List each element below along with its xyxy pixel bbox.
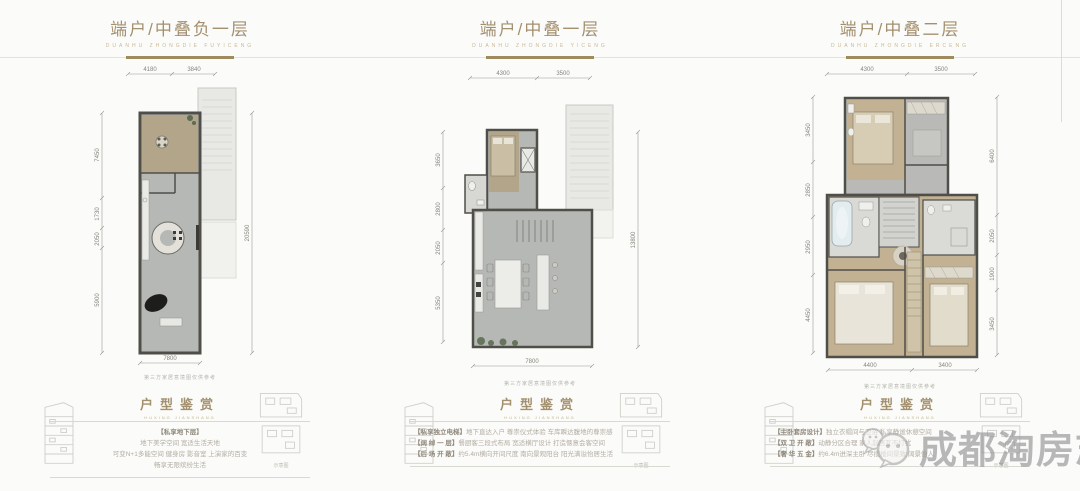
svg-text:2850: 2850 — [806, 183, 812, 197]
svg-text:5900: 5900 — [95, 293, 101, 307]
appreciation-header: 户型鉴赏 HUXING JIANSHANG — [775, 394, 1025, 420]
floor-plan-basement: 4180 3840 7450 1730 2050 5900 20590 7800 — [40, 60, 270, 370]
svg-text:4400: 4400 — [863, 363, 877, 369]
svg-text:4180: 4180 — [143, 67, 157, 73]
svg-text:3400: 3400 — [938, 363, 952, 369]
appreciation-header: 户型鉴赏 HUXING JIANSHANG — [55, 394, 305, 420]
dimension-right: 20590 — [245, 111, 254, 355]
panel-subtitle: DUANHU ZHONGDIE ERCENG — [720, 43, 1080, 49]
svg-text:7450: 7450 — [95, 148, 101, 162]
dimension-left: 3450 2850 2950 4450 — [806, 95, 815, 355]
bathroom — [465, 175, 487, 213]
panel-subtitle: DUANHU ZHONGDIE YICENG — [360, 43, 720, 49]
stairwell-annex — [198, 88, 236, 278]
dimension-top: 4300 3500 — [825, 67, 977, 76]
wechat-bubbles-icon — [860, 423, 914, 471]
svg-text:2050: 2050 — [436, 241, 442, 255]
bedroom-block — [487, 130, 537, 210]
living-dining-block — [473, 210, 592, 347]
appreciation-header: 户型鉴赏 HUXING JIANSHANG — [415, 394, 665, 420]
gold-accent-bar — [486, 56, 594, 59]
floor-plan-first: 4300 3500 3650 2800 2050 5350 13800 7800 — [395, 60, 675, 376]
dimension-right: 6400 2050 1900 3450 — [990, 95, 999, 357]
svg-text:3840: 3840 — [187, 67, 201, 73]
svg-text:1730: 1730 — [95, 207, 101, 221]
desc-line: 畅享无限缤纷生活 — [54, 460, 306, 471]
dimension-bottom: 7800 — [471, 359, 594, 368]
svg-text:4300: 4300 — [496, 71, 510, 77]
upper-section — [845, 98, 948, 195]
svg-text:7800: 7800 — [163, 356, 177, 362]
svg-text:2800: 2800 — [436, 202, 442, 216]
plan-caption: 第三方家居意境图仅供参考 — [0, 374, 360, 381]
appreciation-title: 户型鉴赏 — [775, 394, 1025, 413]
lower-section — [827, 195, 977, 357]
dimension-bottom: 7800 — [138, 356, 202, 365]
svg-text:4450: 4450 — [806, 308, 812, 322]
panel-title: 端户/中叠负一层 — [0, 15, 360, 40]
svg-text:3500: 3500 — [934, 67, 948, 73]
appreciation-subtitle: HUXING JIANSHANG — [415, 415, 665, 420]
svg-text:13800: 13800 — [631, 231, 637, 248]
svg-text:3450: 3450 — [806, 123, 812, 137]
desc-line: 地下美学空间 宽适生活天地 — [54, 438, 306, 449]
svg-text:3450: 3450 — [990, 317, 996, 331]
svg-text:20590: 20590 — [245, 224, 251, 241]
dimension-bottom: 4400 3400 — [826, 363, 979, 372]
dimension-left: 7450 1730 2050 5900 — [95, 111, 104, 355]
desc-line: 可变N+1多能空间 健身房 影音室 上演家的百变 — [54, 449, 306, 460]
floor-plan-second: 4300 3500 3450 2850 2950 4450 6400 2050 … — [755, 60, 1055, 380]
watermark-text: 成都淘房志 — [919, 419, 1080, 474]
svg-text:1900: 1900 — [990, 267, 996, 281]
appreciation-text: 【私享地下层】 地下美学空间 宽适生活天地 可变N+1多能空间 健身房 影音室 … — [50, 421, 310, 478]
dimension-top: 4180 3840 — [126, 67, 217, 76]
appreciation-title: 户型鉴赏 — [415, 394, 665, 413]
gold-accent-bar — [846, 56, 954, 59]
svg-text:4300: 4300 — [860, 67, 874, 73]
plan-caption: 第三方家居意境图仅供参考 — [720, 383, 1080, 390]
panel-title: 端户/中叠一层 — [360, 15, 720, 40]
desc-line: 【私享地下层】 — [54, 427, 306, 438]
dimension-left: 3650 2800 2050 5350 — [436, 130, 445, 344]
panel-subtitle: DUANHU ZHONGDIE FUYICENG — [0, 43, 360, 49]
dimension-right: 13800 — [631, 130, 640, 349]
svg-text:2050: 2050 — [95, 232, 101, 246]
desc-line: 【后 场 开 敞】约5.4m横向开间尺度 南向景观阳台 阳光满溢怡居生活 — [414, 449, 666, 460]
desc-line: 【阔 绰 一 层】餐厨客三段式布局 宽适横厅设计 打造惬意会客空间 — [414, 438, 666, 449]
svg-text:3500: 3500 — [556, 71, 570, 77]
panel-basement: 端户/中叠负一层 DUANHU ZHONGDIE FUYICENG — [0, 0, 360, 491]
svg-text:6400: 6400 — [990, 149, 996, 163]
plan-caption: 第三方家居意境图仅供参考 — [360, 380, 720, 387]
panel-second-floor: 端户/中叠二层 DUANHU ZHONGDIE ERCENG — [720, 0, 1080, 491]
svg-text:7800: 7800 — [525, 359, 539, 365]
appreciation-subtitle: HUXING JIANSHANG — [55, 415, 305, 420]
appreciation-title: 户型鉴赏 — [55, 394, 305, 413]
panel-title: 端户/中叠二层 — [720, 15, 1080, 40]
panel-first-floor: 端户/中叠一层 DUANHU ZHONGDIE YICENG — [360, 0, 720, 491]
watermark: 成都淘房志 — [860, 419, 1080, 474]
gold-accent-bar — [126, 56, 234, 59]
appreciation-text: 【私享独立电梯】地下直达入户 尊崇仪式体验 车库瞬达腹地的尊崇感 【阔 绰 一 … — [410, 421, 670, 467]
floorplan-sheet: 端户/中叠负一层 DUANHU ZHONGDIE FUYICENG — [0, 0, 1080, 491]
svg-text:2050: 2050 — [990, 229, 996, 243]
svg-text:2950: 2950 — [806, 240, 812, 254]
desc-line: 【私享独立电梯】地下直达入户 尊崇仪式体验 车库瞬达腹地的尊崇感 — [414, 427, 666, 438]
main-unit — [140, 113, 200, 353]
svg-text:3650: 3650 — [436, 153, 442, 167]
svg-text:5350: 5350 — [436, 296, 442, 310]
dimension-top: 4300 3500 — [468, 71, 592, 80]
